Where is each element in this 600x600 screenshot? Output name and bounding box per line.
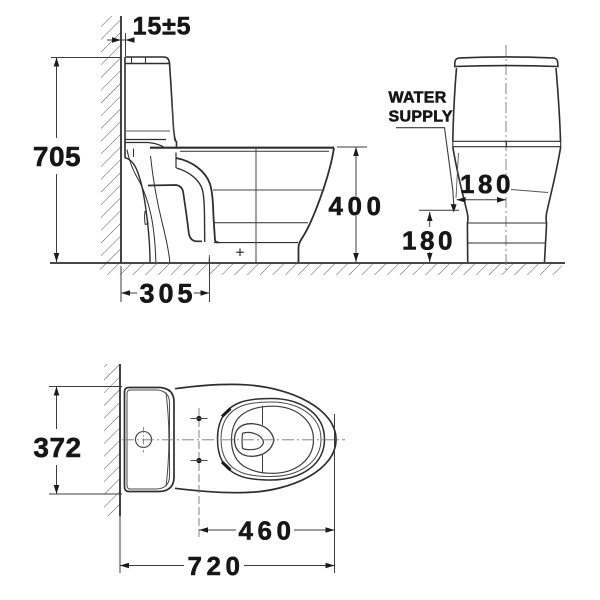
svg-text:705: 705 [33, 141, 81, 172]
svg-text:WATER: WATER [389, 90, 447, 107]
svg-text:720: 720 [188, 551, 245, 581]
svg-text:372: 372 [33, 432, 81, 463]
svg-text:180: 180 [402, 226, 456, 256]
svg-text:305: 305 [139, 279, 196, 309]
svg-text:15±5: 15±5 [133, 13, 192, 41]
svg-text:SUPPLY: SUPPLY [389, 109, 453, 126]
svg-text:460: 460 [239, 516, 296, 546]
svg-text:400: 400 [329, 191, 386, 221]
svg-text:180: 180 [460, 169, 514, 199]
